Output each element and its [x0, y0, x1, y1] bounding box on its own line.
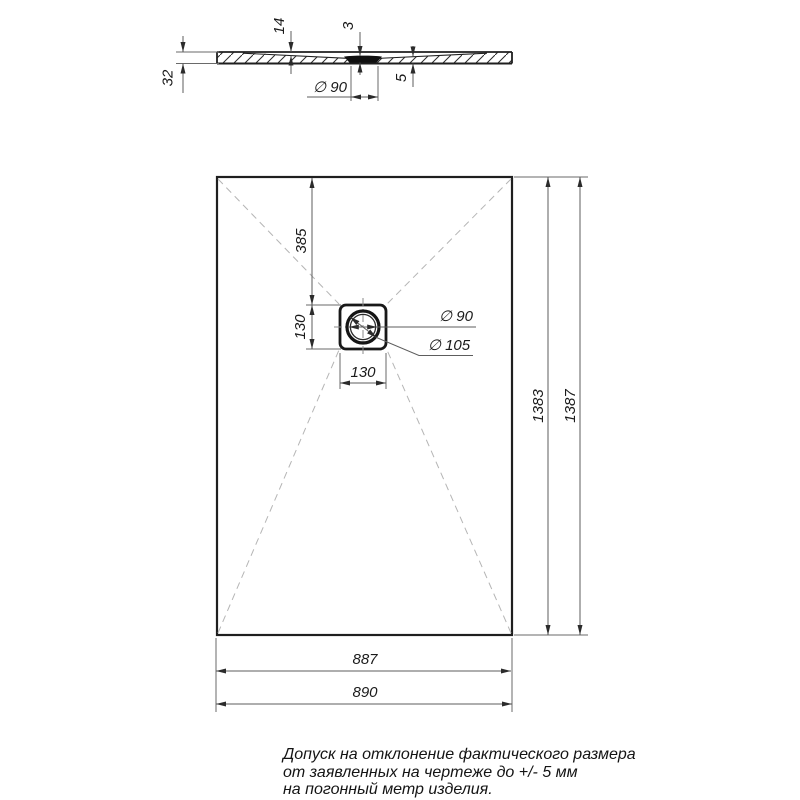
- dim-3-label: 3: [340, 21, 357, 30]
- dim-d90-plan-label: ∅ 90: [439, 308, 474, 325]
- dim-130h-label: 130: [350, 364, 376, 381]
- section-view: 32 14 3 5 ∅ 90: [160, 18, 513, 101]
- tolerance-note-line2: от заявленных на чертеже до +/- 5 мм: [283, 764, 663, 782]
- tray-outline: [217, 177, 512, 635]
- tolerance-note: Допуск на отклонение фактического размер…: [283, 746, 663, 799]
- dim-1383-label: 1383: [530, 389, 547, 423]
- plan-view: 385 130 130 ∅ 90 ∅ 105 1383 1387: [216, 177, 588, 712]
- tolerance-note-line3: на погонный метр изделия.: [283, 781, 663, 799]
- dim-1387-label: 1387: [562, 389, 579, 423]
- dim-5-label: 5: [393, 73, 410, 82]
- dim-890-label: 890: [352, 684, 378, 701]
- dim-32-label: 32: [160, 69, 177, 86]
- slope-diagonals: [218, 179, 511, 633]
- dim-d90-section-label: ∅ 90: [313, 79, 348, 96]
- drawing-sheet: 32 14 3 5 ∅ 90: [0, 0, 800, 800]
- dim-385-label: 385: [293, 228, 310, 254]
- dim-130v-label: 130: [292, 314, 309, 340]
- dim-14-label: 14: [271, 18, 288, 35]
- tolerance-note-line1: Допуск на отклонение фактического размер…: [283, 746, 663, 764]
- plan-dimensions: 385 130 130 ∅ 90 ∅ 105 1383 1387: [216, 177, 588, 712]
- technical-drawing: 32 14 3 5 ∅ 90: [0, 0, 800, 800]
- dim-d105-label: ∅ 105: [428, 337, 471, 354]
- dim-887-label: 887: [352, 651, 378, 668]
- drain-recess: [344, 56, 382, 63]
